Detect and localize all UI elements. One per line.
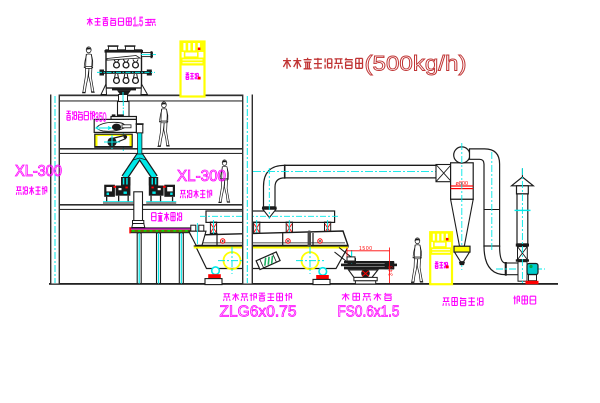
svg-text:(500kg/h): (500kg/h) [365, 52, 467, 76]
svg-text:ø800: ø800 [456, 181, 469, 187]
svg-text:FS0.6x1.5: FS0.6x1.5 [338, 304, 400, 321]
svg-text:XL-300: XL-300 [177, 168, 226, 185]
svg-text:350: 350 [95, 110, 107, 125]
svg-text:ZLG6x0.75: ZLG6x0.75 [220, 304, 297, 321]
svg-text:XL-300: XL-300 [15, 163, 62, 180]
svg-text:1500: 1500 [359, 246, 372, 252]
svg-text:1.5: 1.5 [133, 15, 144, 29]
svg-text:345: 345 [389, 266, 395, 276]
